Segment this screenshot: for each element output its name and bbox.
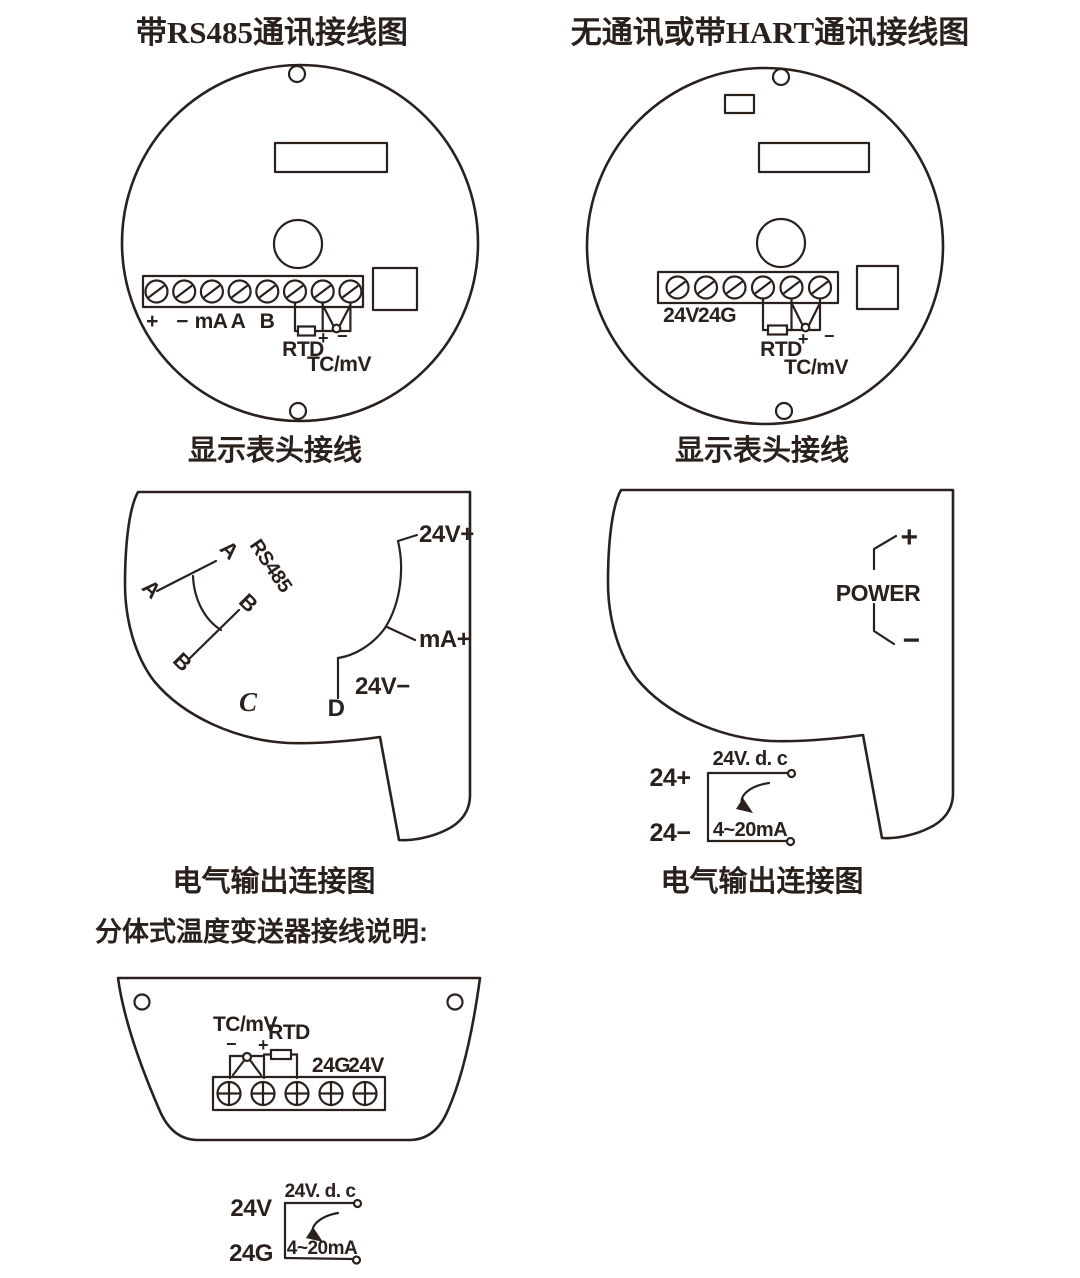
24v-plus-label: 24V+ bbox=[419, 521, 474, 548]
tc-label: TC/mV bbox=[784, 356, 849, 379]
screw-terminal bbox=[229, 281, 251, 303]
rs485-label: RS485 bbox=[245, 535, 296, 596]
screw-terminal bbox=[695, 277, 717, 299]
terminal-screws bbox=[218, 1082, 377, 1105]
right-cover-caption: 显示表头接线 bbox=[675, 434, 849, 467]
power-plus-label: + bbox=[900, 521, 917, 554]
center-hole bbox=[274, 220, 322, 268]
left-output-diagram: A A RS485 B B C D 24V+ mA+ 24V− bbox=[125, 492, 474, 840]
tc-plus-label: + bbox=[318, 328, 328, 348]
rtd-resistor bbox=[298, 327, 315, 336]
screw-terminal bbox=[201, 281, 223, 303]
split-loop-supply-box: 24V. d. c 24V 24G 4~20mA bbox=[229, 1181, 361, 1267]
screw-terminal bbox=[809, 277, 831, 299]
tc-minus-label: − bbox=[824, 326, 834, 346]
wire-b-label: B bbox=[168, 647, 197, 676]
right-output-caption: 电气输出连接图 bbox=[660, 864, 863, 898]
ma-plus-label: mA+ bbox=[419, 626, 471, 653]
right-terminal-cover-diagram: 24V 24G RTD + − TC/mV bbox=[587, 68, 943, 424]
terminal-label-24g: 24G bbox=[698, 304, 736, 327]
terminal-label: + bbox=[146, 310, 158, 333]
right-output-diagram: + POWER − 24V. d. c 24+ 24− 4~20mA bbox=[608, 490, 953, 847]
title-rs485: 带RS485通讯接线图 bbox=[136, 15, 408, 50]
screw-terminal bbox=[320, 1082, 343, 1105]
screw-terminal bbox=[312, 281, 334, 303]
arrowhead bbox=[736, 798, 753, 813]
24v-minus-label: 24V− bbox=[355, 673, 410, 700]
24v-label: 24V bbox=[230, 1195, 272, 1222]
power-label: POWER bbox=[836, 580, 921, 606]
wire-c-label: C bbox=[239, 687, 258, 717]
terminal-label: mA bbox=[195, 310, 228, 333]
connector-box bbox=[857, 266, 898, 309]
left-output-caption: 电气输出连接图 bbox=[172, 864, 375, 898]
left-cover-caption: 显示表头接线 bbox=[188, 434, 362, 467]
display-window bbox=[275, 143, 387, 172]
24-minus-label: 24− bbox=[650, 819, 691, 847]
screw-hole-top bbox=[773, 69, 789, 85]
current-label: 4~20mA bbox=[287, 1238, 358, 1259]
cover-outline bbox=[587, 68, 943, 424]
sensor-wiring bbox=[763, 299, 820, 335]
screw-terminal bbox=[667, 277, 689, 299]
screw-terminal bbox=[146, 281, 168, 303]
terminal-strip bbox=[658, 272, 838, 303]
terminal-dot bbox=[788, 770, 795, 777]
screw-terminal bbox=[752, 277, 774, 299]
left-terminal-cover-diagram: + − mA A B RTD + − TC/mV bbox=[122, 65, 478, 421]
screw-terminal bbox=[218, 1082, 241, 1105]
wire-b-label: B bbox=[234, 588, 263, 617]
display-window bbox=[759, 143, 869, 172]
terminal-label: − bbox=[176, 310, 188, 333]
power-minus-label: − bbox=[902, 624, 919, 657]
terminal-label-24v: 24V bbox=[348, 1054, 384, 1077]
split-transmitter-diagram: TC/mV RTD − + 24G 24V bbox=[118, 978, 480, 1140]
connector-box bbox=[373, 268, 417, 310]
terminal-label: A bbox=[231, 310, 246, 333]
current-label: 4~20mA bbox=[713, 819, 787, 841]
rtd-resistor bbox=[271, 1050, 291, 1059]
terminal-dot bbox=[787, 838, 794, 845]
rs485-wires bbox=[157, 561, 239, 658]
tc-minus-label: − bbox=[337, 326, 347, 346]
screw-hole-left bbox=[135, 995, 150, 1010]
screw-terminal bbox=[256, 281, 278, 303]
wire-d-label: D bbox=[328, 695, 345, 722]
screw-hole-top bbox=[289, 66, 305, 82]
screw-terminal bbox=[724, 277, 746, 299]
wire-a-label: A bbox=[137, 574, 166, 603]
title-hart: 无通讯或带HART通讯接线图 bbox=[571, 15, 969, 50]
screw-terminal bbox=[284, 281, 306, 303]
small-window bbox=[725, 95, 754, 113]
24-plus-label: 24+ bbox=[650, 764, 691, 792]
terminal-strip bbox=[143, 276, 363, 307]
split-section-heading: 分体式温度变送器接线说明: bbox=[95, 916, 428, 947]
screw-terminal bbox=[252, 1082, 275, 1105]
housing-outline bbox=[118, 978, 480, 1140]
wiring-diagram-page: 带RS485通讯接线图 无通讯或带HART通讯接线图 bbox=[0, 0, 1080, 1278]
terminal-label-24v: 24V bbox=[663, 304, 699, 327]
terminal-screws bbox=[146, 281, 362, 303]
tc-label: TC/mV bbox=[307, 353, 372, 376]
screw-terminal bbox=[339, 281, 361, 303]
screw-hole-bottom bbox=[290, 403, 306, 419]
tc-plus-label: + bbox=[258, 1035, 268, 1055]
terminal-label-24g: 24G bbox=[312, 1054, 350, 1077]
cover-outline bbox=[122, 65, 478, 421]
tc-minus-label: − bbox=[226, 1034, 236, 1054]
supply-label: 24V. d. c bbox=[713, 748, 788, 770]
screw-terminal bbox=[781, 277, 803, 299]
rtd-label: RTD bbox=[268, 1021, 310, 1044]
terminal-screws bbox=[667, 277, 832, 299]
screw-terminal bbox=[354, 1082, 377, 1105]
wire-a-label: A bbox=[215, 535, 244, 564]
screw-terminal bbox=[286, 1082, 309, 1105]
screw-hole-right bbox=[448, 995, 463, 1010]
rtd-resistor bbox=[768, 326, 787, 335]
supply-label: 24V. d. c bbox=[285, 1181, 357, 1202]
terminal-label: B bbox=[260, 310, 275, 333]
screw-hole-bottom bbox=[776, 403, 792, 419]
tc-plus-label: + bbox=[798, 329, 808, 349]
screw-terminal bbox=[173, 281, 195, 303]
24g-label: 24G bbox=[229, 1240, 273, 1267]
center-hole bbox=[757, 219, 805, 267]
